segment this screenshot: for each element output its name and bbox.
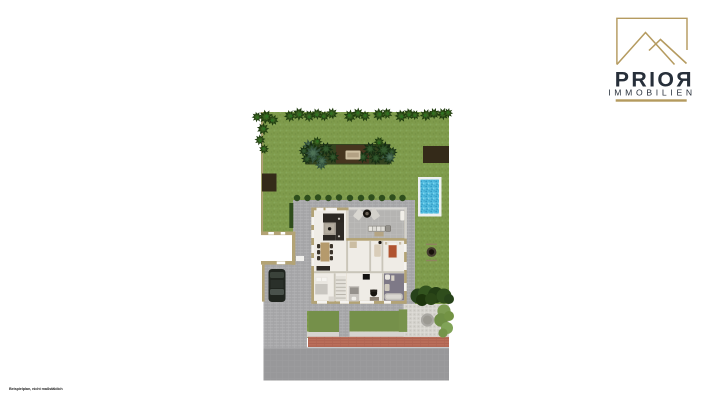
svg-text:IMMOBILIEN: IMMOBILIEN (608, 87, 696, 97)
svg-text:Beispielplan, nicht maßstäblic: Beispielplan, nicht maßstäblich (9, 387, 63, 391)
